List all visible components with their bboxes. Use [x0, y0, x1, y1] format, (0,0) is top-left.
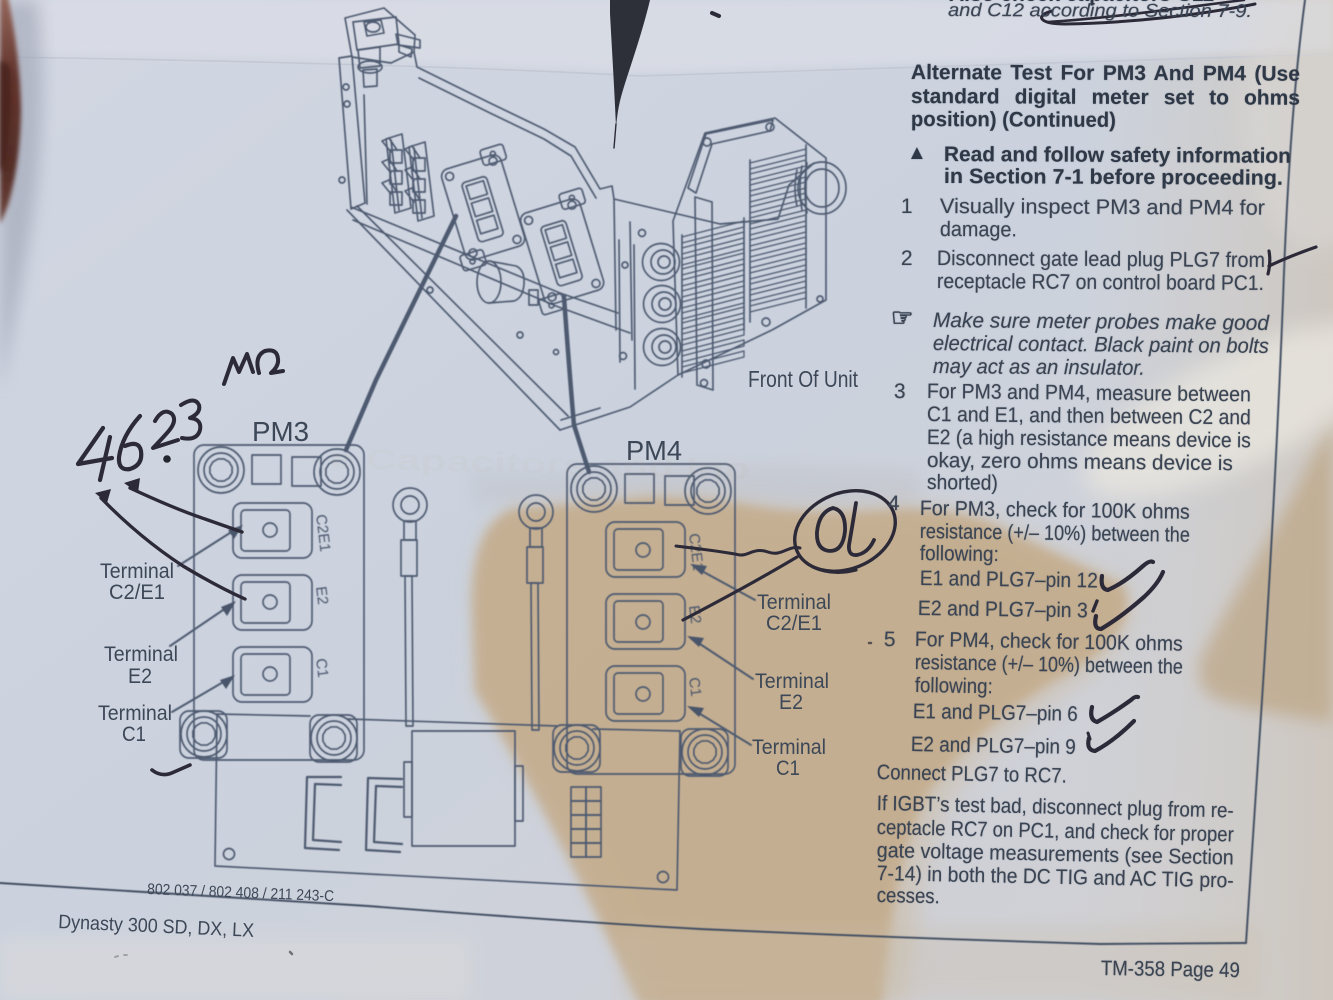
svg-text:Terminal: Terminal — [100, 560, 174, 583]
svg-text:C2/E1: C2/E1 — [109, 581, 165, 604]
svg-text:Terminal: Terminal — [757, 591, 831, 614]
svg-text:E2: E2 — [779, 691, 803, 714]
svg-text:E2: E2 — [128, 665, 152, 688]
svg-text:Terminal: Terminal — [752, 736, 826, 759]
svg-text:C2/E1: C2/E1 — [766, 612, 822, 635]
svg-text:Terminal: Terminal — [98, 702, 172, 725]
svg-text:C1: C1 — [312, 657, 331, 678]
svg-text:C1: C1 — [776, 757, 800, 780]
svg-text:802 037 / 802 408 / 211 243-C: 802 037 / 802 408 / 211 243-C — [147, 881, 335, 905]
svg-text:C1: C1 — [685, 676, 704, 697]
svg-text:C1: C1 — [122, 723, 146, 746]
svg-text:Dynasty 300 SD, DX, LX: Dynasty 300 SD, DX, LX — [58, 911, 255, 942]
svg-text:Front Of Unit: Front Of Unit — [748, 366, 858, 392]
svg-text:e Capacitors and Inp: e Capacitors and Inp — [330, 443, 751, 486]
svg-text:Terminal: Terminal — [104, 643, 178, 666]
svg-text:PM3: PM3 — [252, 416, 309, 447]
svg-text:E2: E2 — [312, 585, 331, 605]
svg-text:Terminal: Terminal — [755, 670, 829, 693]
svg-text:C2E1: C2E1 — [312, 513, 333, 552]
